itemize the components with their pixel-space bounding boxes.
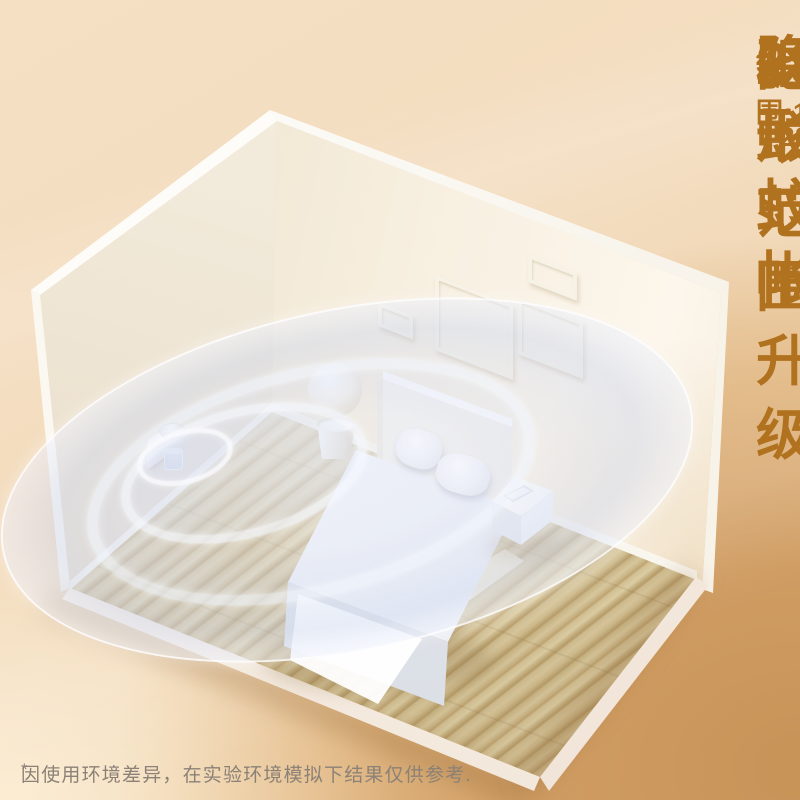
- product-banner: 驱蚊范围升级 28m3隐形蚊帐* 适用范围:10m2x2.8m高=28m3 *因…: [0, 0, 800, 800]
- subtitle-exponent2: 3: [756, 52, 765, 69]
- footnote-text: 因使用环境差异，在实验环境模拟下结果仅供参考.: [21, 760, 472, 787]
